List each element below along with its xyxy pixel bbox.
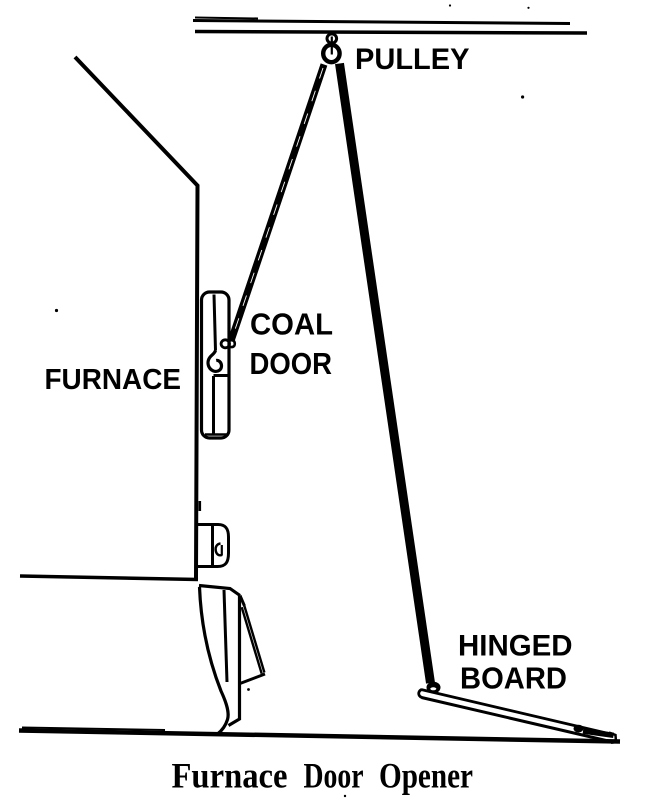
svg-text:FURNACE: FURNACE xyxy=(45,364,182,396)
svg-text:Furnace: Furnace xyxy=(172,756,288,796)
svg-text:PULLEY: PULLEY xyxy=(355,43,470,76)
svg-text:COAL: COAL xyxy=(250,307,333,342)
svg-text:BOARD: BOARD xyxy=(460,662,567,696)
svg-text:Opener: Opener xyxy=(379,756,473,796)
svg-text:HINGED: HINGED xyxy=(458,630,573,663)
svg-text:Door: Door xyxy=(304,756,364,796)
svg-text:DOOR: DOOR xyxy=(250,347,333,381)
